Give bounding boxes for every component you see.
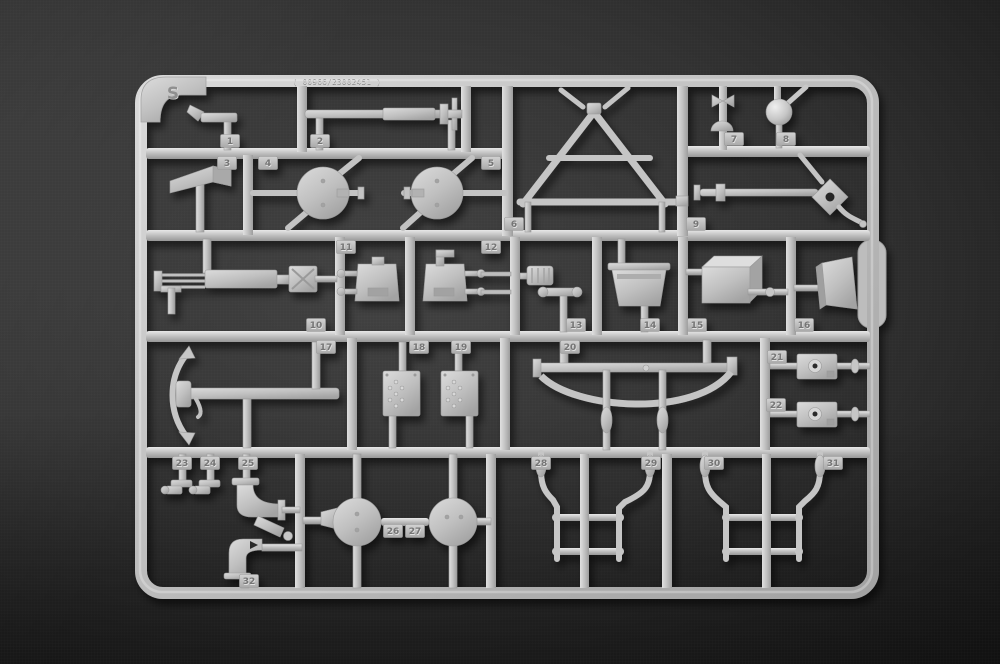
part-number-label: 21 — [771, 353, 784, 363]
part-number-tab-9: 99 — [687, 218, 706, 231]
part-number-tab-11: 1111 — [337, 241, 356, 254]
part-number-tab-20: 2020 — [561, 341, 580, 354]
part-number-label: 23 — [176, 459, 189, 469]
mold-code: ( 00966/23002451 ) — [293, 77, 381, 86]
part-number-tab-21: 2121 — [768, 351, 787, 364]
model-kit-sprue: 1122334455667788991010111112121313141415… — [0, 0, 1000, 664]
part-number-tab-24: 2424 — [201, 457, 220, 470]
part-number-label: 32 — [243, 577, 256, 587]
part-number-label: 7 — [731, 135, 737, 145]
part-number-tab-26: 2626 — [384, 525, 403, 538]
part-number-label: 25 — [242, 459, 255, 469]
part-number-label: 29 — [645, 459, 658, 469]
part-number-label: 13 — [570, 321, 583, 331]
part-number-label: 20 — [564, 343, 577, 353]
part-number-label: 17 — [320, 343, 333, 353]
part-32-elbow-pipe — [224, 539, 302, 588]
part-26-wheel-disc — [303, 454, 381, 588]
part-number-label: 14 — [644, 321, 657, 331]
part-number-label: 1 — [227, 137, 233, 147]
part-6-a-frame — [520, 88, 688, 232]
part-number-tab-27: 2727 — [406, 525, 425, 538]
part-number-label: 10 — [310, 321, 323, 331]
part-number-label: 11 — [340, 243, 353, 253]
photo-background: 1122334455667788991010111112121313141415… — [0, 0, 1000, 664]
part-number-label: 16 — [798, 321, 811, 331]
part-27-wheel-disc — [429, 454, 491, 588]
part-number-tab-13: 1313 — [567, 319, 586, 332]
part-number-label: 27 — [409, 527, 422, 537]
part-11-mount-bracket — [337, 257, 399, 301]
part-3-bracket — [170, 166, 231, 232]
part-number-tab-28: 2828 — [532, 457, 551, 470]
part-number-label: 3 — [224, 159, 230, 169]
part-number-tab-30: 3030 — [705, 457, 724, 470]
part-number-tab-6: 66 — [505, 218, 524, 231]
part-number-label: 28 — [535, 459, 548, 469]
part-number-tab-16: 1616 — [795, 319, 814, 332]
part-number-label: 9 — [693, 220, 699, 230]
part-14-bucket — [608, 239, 670, 332]
part-31-curved-rod — [799, 453, 825, 559]
part-number-label: 31 — [827, 459, 840, 469]
part-number-label: 4 — [265, 159, 271, 169]
part-18-riveted-plate — [383, 342, 420, 448]
part-number-label: 12 — [485, 243, 498, 253]
part-number-tab-14: 1414 — [641, 319, 660, 332]
part-number-label: 26 — [387, 527, 400, 537]
part-number-tab-17: 1717 — [317, 341, 336, 354]
part-number-tab-5: 55 — [482, 157, 501, 170]
sprue-letter: S — [167, 84, 179, 104]
part-number-label: 19 — [455, 343, 468, 353]
part-number-tab-2: 22 — [311, 135, 330, 148]
part-number-label: 15 — [691, 321, 704, 331]
part-number-label: 8 — [783, 135, 789, 145]
part-number-label: 2 — [317, 137, 323, 147]
part-number-label: 5 — [488, 159, 494, 169]
part-number-tab-3: 33 — [218, 157, 237, 170]
part-number-tab-18: 1818 — [410, 341, 429, 354]
part-number-tab-15: 1515 — [688, 319, 707, 332]
part-number-tab-7: 77 — [725, 133, 744, 146]
part-number-tab-29: 2929 — [642, 457, 661, 470]
part-number-tab-31: 3131 — [824, 457, 843, 470]
part-number-tab-12: 1212 — [482, 241, 501, 254]
part-17-axle-bow — [173, 342, 340, 448]
part-number-tab-10: 1010 — [307, 319, 326, 332]
part-number-tab-1: 11 — [221, 135, 240, 148]
part-9-rod-with-plate — [694, 155, 867, 228]
part-number-label: 22 — [770, 401, 783, 411]
part-number-label: 6 — [511, 220, 517, 230]
part-19-riveted-plate — [441, 342, 478, 448]
part-number-tab-25: 2525 — [239, 457, 258, 470]
part-12-mount-bracket — [423, 250, 511, 301]
part-number-tab-23: 2323 — [173, 457, 192, 470]
part-number-tab-4: 44 — [259, 157, 278, 170]
part-number-tab-19: 1919 — [452, 341, 471, 354]
part-20-leaf-spring — [533, 340, 737, 450]
part-number-label: 24 — [204, 459, 217, 469]
part-16-panel — [794, 257, 857, 309]
part-10-machine-gun — [154, 239, 337, 314]
part-number-label: 18 — [413, 343, 426, 353]
part-15-box — [686, 256, 788, 303]
part-number-tab-22: 2222 — [767, 399, 786, 412]
part-number-label: 30 — [708, 459, 721, 469]
part-number-tab-32: 3232 — [240, 575, 259, 588]
part-number-tab-8: 88 — [777, 133, 796, 146]
